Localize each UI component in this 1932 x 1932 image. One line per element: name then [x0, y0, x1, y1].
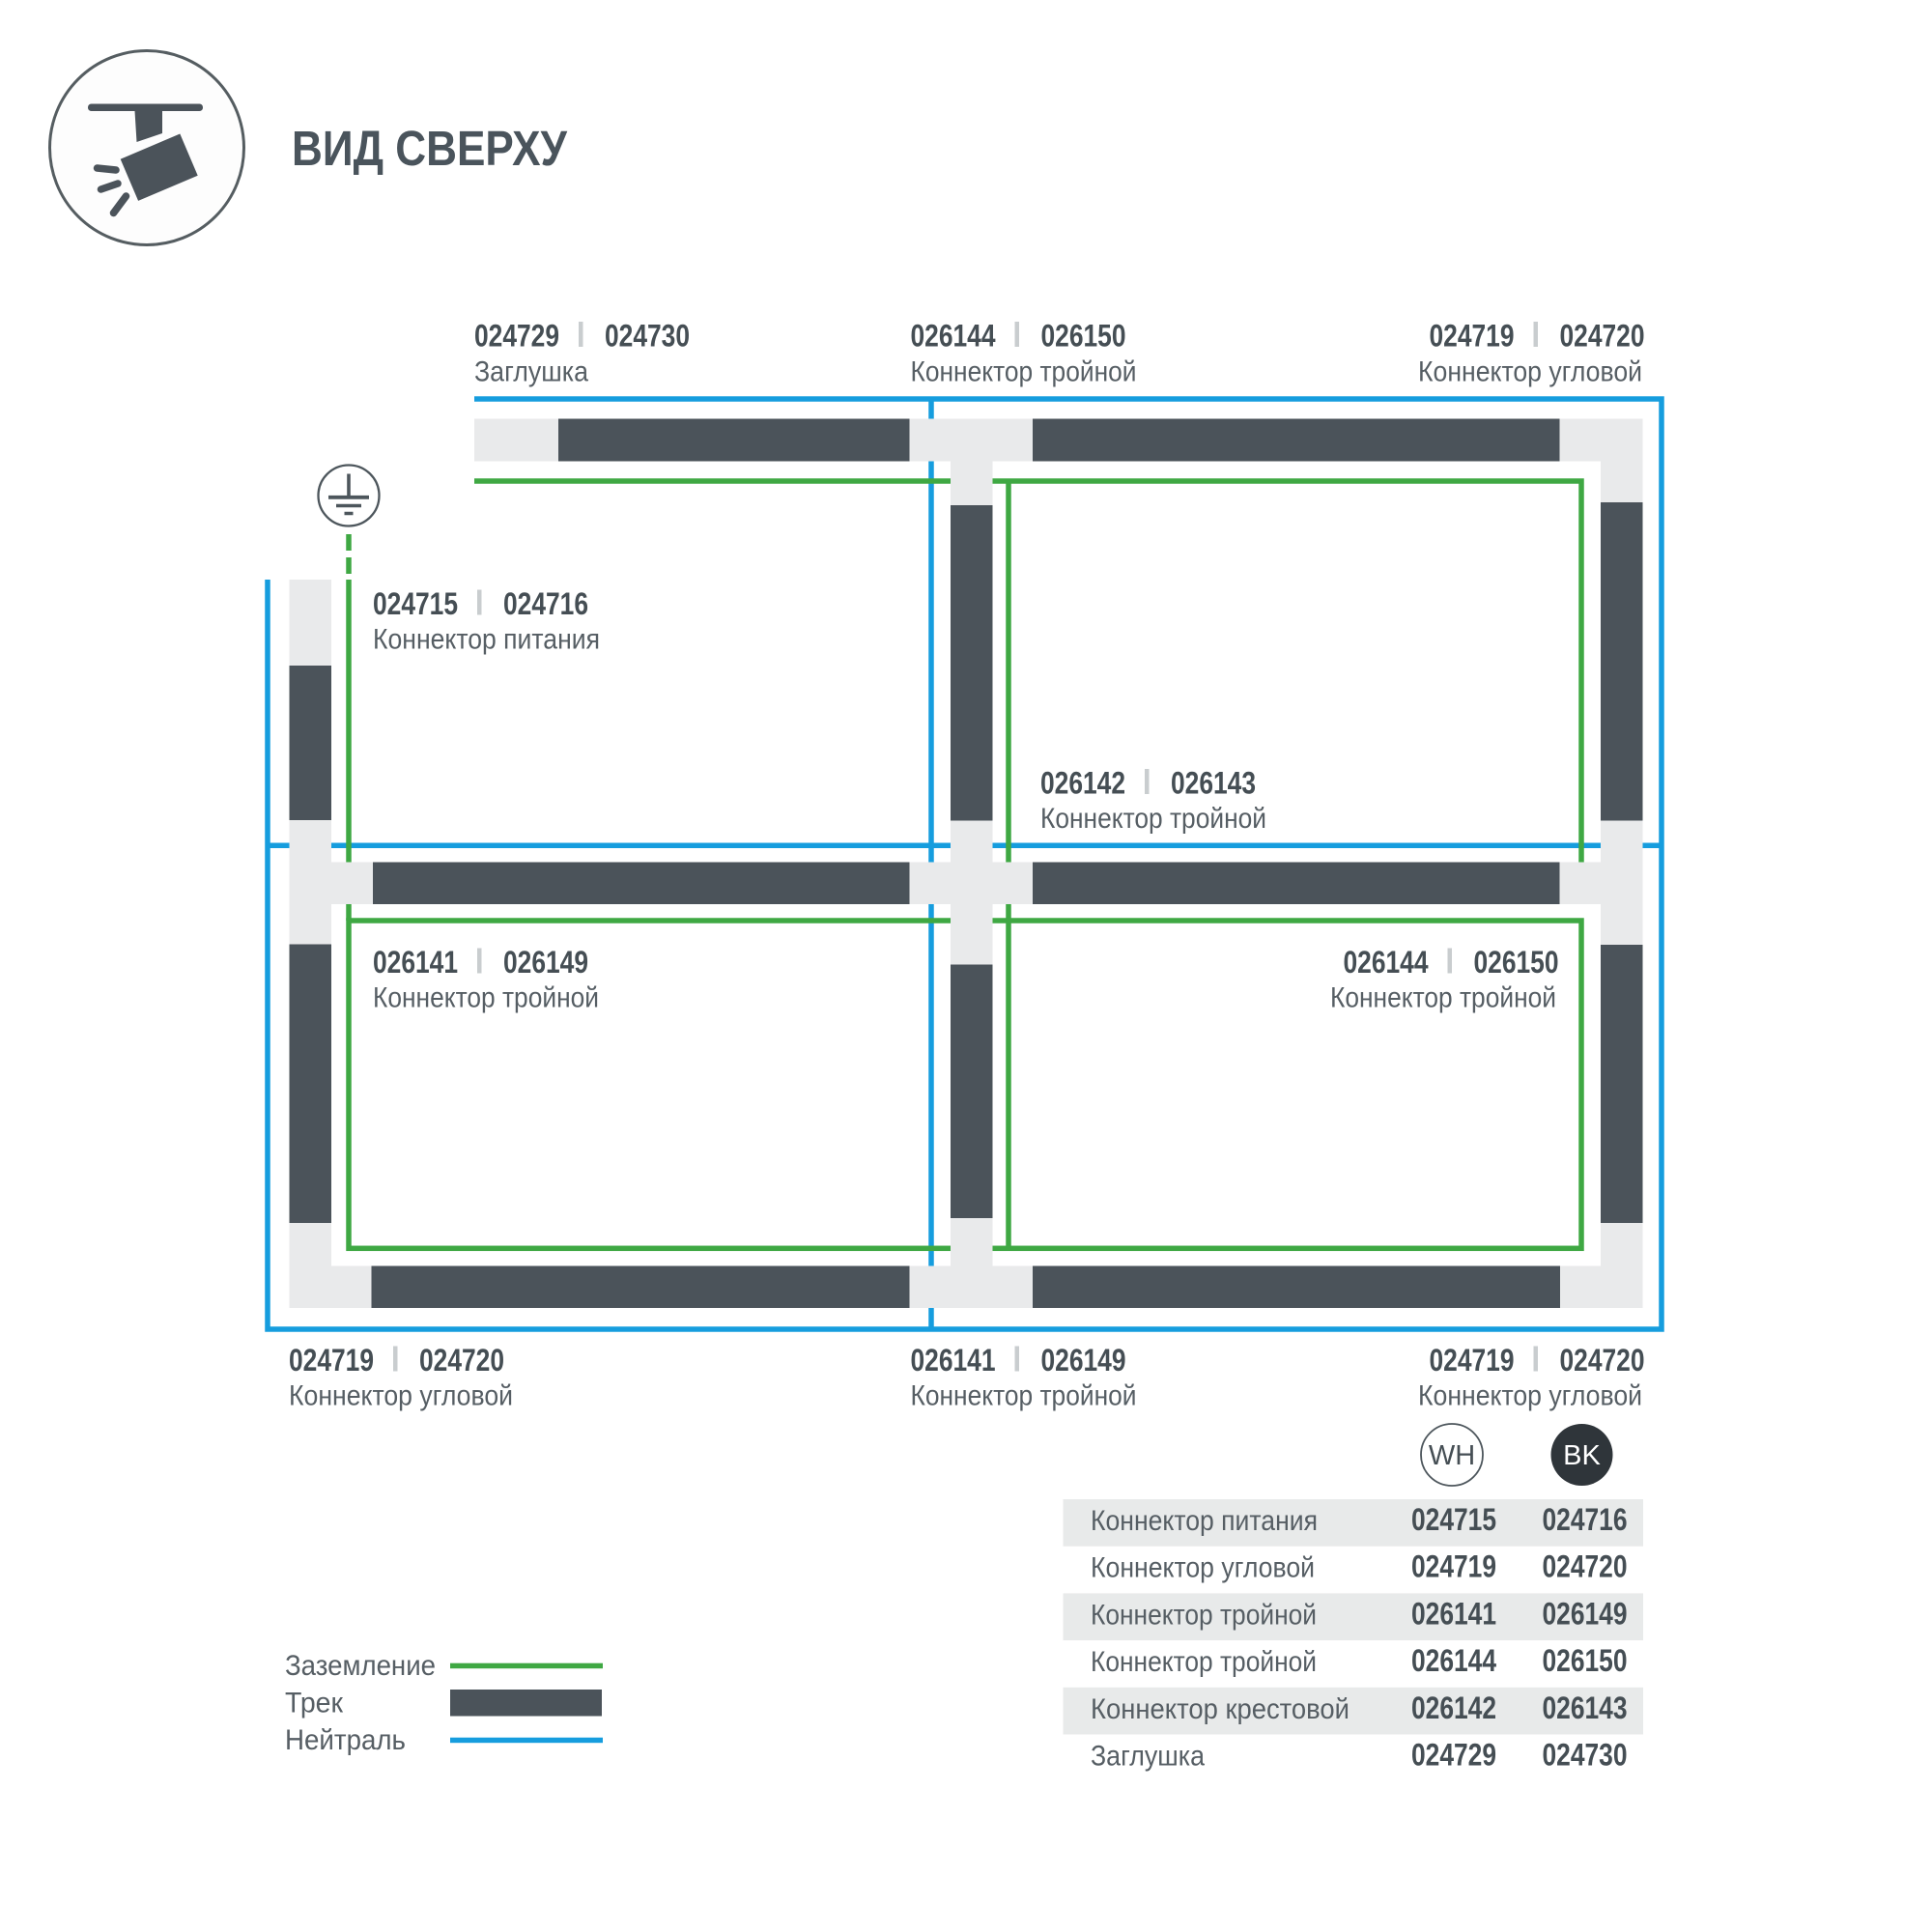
svg-text:024719: 024719: [1430, 1343, 1515, 1378]
svg-text:Заглушка: Заглушка: [1091, 1741, 1205, 1773]
svg-text:Трек: Трек: [285, 1688, 344, 1719]
svg-text:026143: 026143: [1171, 766, 1256, 801]
svg-text:026144: 026144: [911, 319, 996, 354]
svg-text:Коннектор питания: Коннектор питания: [373, 624, 600, 656]
svg-text:Коннектор тройной: Коннектор тройной: [911, 356, 1137, 388]
svg-text:024716: 024716: [503, 586, 588, 621]
svg-text:Коннектор крестовой: Коннектор крестовой: [1091, 1693, 1350, 1725]
svg-text:024720: 024720: [1560, 319, 1645, 354]
svg-text:WH: WH: [1429, 1440, 1475, 1471]
svg-text:026144: 026144: [1344, 945, 1429, 980]
svg-text:024730: 024730: [1543, 1738, 1628, 1773]
svg-text:026143: 026143: [1543, 1690, 1628, 1725]
svg-text:026142: 026142: [1411, 1690, 1496, 1725]
svg-text:026141: 026141: [373, 945, 458, 980]
svg-text:Коннектор тройной: Коннектор тройной: [1330, 982, 1556, 1014]
svg-text:024720: 024720: [1543, 1549, 1628, 1584]
svg-text:Коннектор угловой: Коннектор угловой: [1091, 1552, 1315, 1584]
svg-text:026149: 026149: [503, 945, 588, 980]
svg-text:Коннектор угловой: Коннектор угловой: [289, 1380, 513, 1412]
svg-text:026150: 026150: [1041, 319, 1126, 354]
svg-text:Заземление: Заземление: [285, 1650, 436, 1682]
svg-text:BK: BK: [1563, 1440, 1601, 1471]
svg-text:026149: 026149: [1543, 1596, 1628, 1631]
svg-text:ВИД СВЕРХУ: ВИД СВЕРХУ: [292, 121, 568, 176]
svg-text:024720: 024720: [419, 1343, 504, 1378]
svg-text:024719: 024719: [1430, 319, 1515, 354]
svg-text:Коннектор тройной: Коннектор тройной: [1091, 1646, 1317, 1678]
svg-text:024720: 024720: [1560, 1343, 1645, 1378]
svg-text:024719: 024719: [1411, 1549, 1496, 1584]
svg-text:026144: 026144: [1411, 1643, 1496, 1678]
svg-text:Коннектор угловой: Коннектор угловой: [1418, 1380, 1642, 1412]
svg-text:026149: 026149: [1041, 1343, 1126, 1378]
svg-text:026142: 026142: [1040, 766, 1125, 801]
svg-text:026141: 026141: [911, 1343, 996, 1378]
svg-text:024716: 024716: [1543, 1502, 1628, 1537]
svg-text:Коннектор тройной: Коннектор тройной: [1040, 803, 1266, 835]
svg-text:Нейтраль: Нейтраль: [285, 1724, 406, 1756]
svg-text:024715: 024715: [1411, 1502, 1496, 1537]
svg-text:Коннектор тройной: Коннектор тройной: [373, 982, 599, 1014]
svg-text:026150: 026150: [1543, 1643, 1628, 1678]
svg-text:024715: 024715: [373, 586, 458, 621]
svg-text:024730: 024730: [605, 319, 690, 354]
svg-text:024719: 024719: [289, 1343, 374, 1378]
svg-text:Коннектор угловой: Коннектор угловой: [1418, 356, 1642, 388]
svg-text:024729: 024729: [1411, 1738, 1496, 1773]
svg-text:Коннектор питания: Коннектор питания: [1091, 1505, 1318, 1537]
svg-text:Коннектор тройной: Коннектор тройной: [1091, 1599, 1317, 1631]
svg-text:Коннектор тройной: Коннектор тройной: [911, 1380, 1137, 1412]
svg-text:026141: 026141: [1411, 1596, 1496, 1631]
svg-text:026150: 026150: [1474, 945, 1559, 980]
svg-text:Заглушка: Заглушка: [474, 356, 588, 388]
svg-text:024729: 024729: [474, 319, 559, 354]
